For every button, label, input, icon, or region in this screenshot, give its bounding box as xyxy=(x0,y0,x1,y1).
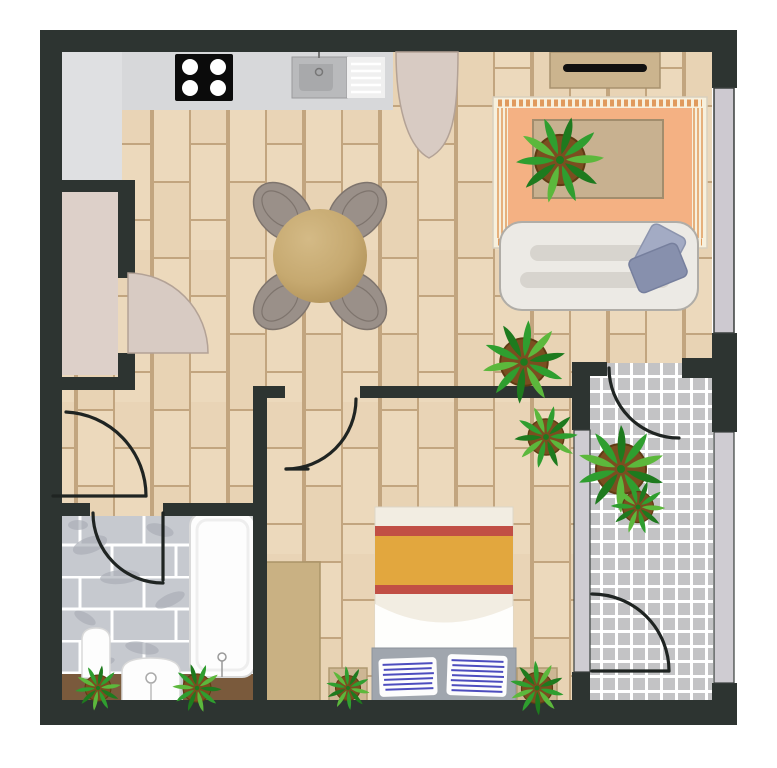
basin-drain-icon xyxy=(146,673,156,683)
kitchen-floor-corner xyxy=(62,52,122,110)
bed-pillow xyxy=(378,657,437,697)
bathroom-wall-right xyxy=(163,503,267,516)
balcony-glass-door-wall xyxy=(574,430,590,672)
balcony-wall-left-top xyxy=(572,362,590,430)
bed-stripe xyxy=(375,526,513,536)
wall-bottom xyxy=(40,700,737,725)
window xyxy=(714,88,734,333)
bedroom-wall-left xyxy=(253,386,267,703)
wardrobe xyxy=(266,562,320,703)
wall-right-bottom xyxy=(712,683,737,725)
balcony-wall-top-right xyxy=(682,358,714,378)
bathroom-wall-left xyxy=(40,503,90,516)
stove-cooktop xyxy=(175,54,233,101)
toilet xyxy=(82,628,110,678)
balcony-floor xyxy=(590,363,713,700)
nook-wall-bottom xyxy=(45,377,135,390)
balcony-wall-top-left xyxy=(590,362,607,376)
kitchen-floor xyxy=(62,108,122,184)
wash-basin xyxy=(122,658,180,704)
wall-right-top xyxy=(712,30,737,88)
bed-stripe xyxy=(375,585,513,594)
tv xyxy=(563,64,647,72)
bathtub xyxy=(190,513,255,677)
tv-console xyxy=(550,52,660,88)
balcony-wall-left-bottom xyxy=(572,672,590,725)
wall-top xyxy=(40,30,737,52)
floor-plan-drawing xyxy=(0,0,777,768)
bed-pillow xyxy=(446,654,507,697)
wall-right-mid xyxy=(712,333,737,432)
bedroom-wall-stub xyxy=(253,386,285,398)
sofa xyxy=(500,222,698,310)
dining-table xyxy=(273,209,367,303)
balcony-railing-right xyxy=(714,432,734,683)
bed-blanket xyxy=(375,536,513,585)
entry-closet-nook xyxy=(62,192,118,375)
bedroom-wall-top xyxy=(360,386,590,398)
nook-wall-right-lower xyxy=(118,353,135,377)
bed xyxy=(372,507,516,705)
floor-plan-page xyxy=(0,0,777,768)
nook-wall-right-upper xyxy=(118,180,135,278)
